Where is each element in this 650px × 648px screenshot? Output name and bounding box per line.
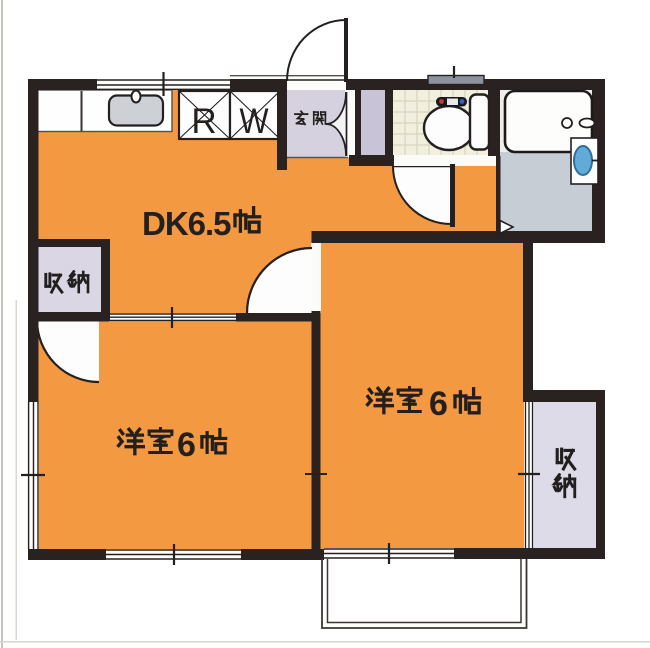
svg-text:DK6.5: DK6.5	[142, 205, 231, 242]
svg-text:6: 6	[429, 385, 448, 423]
svg-text:R: R	[191, 102, 216, 141]
svg-text:6: 6	[177, 426, 196, 464]
svg-text:W: W	[240, 102, 269, 141]
